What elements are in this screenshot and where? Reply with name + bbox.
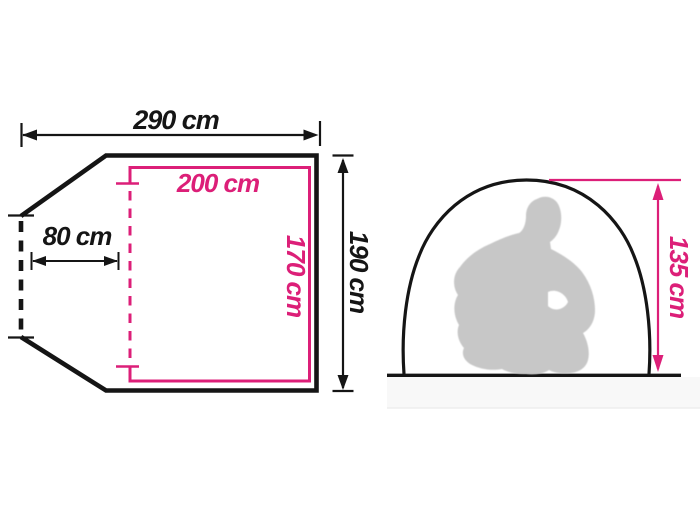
person-silhouette xyxy=(454,197,595,375)
total-width-label: 290 cm xyxy=(106,107,246,134)
arrowhead-right xyxy=(104,256,118,266)
arrowhead-left xyxy=(22,130,37,141)
peak-height-label: 135 cm xyxy=(666,207,692,347)
arrowhead-down xyxy=(338,375,349,390)
arrowhead-up xyxy=(653,183,664,200)
total-depth-label: 190 cm xyxy=(346,202,372,342)
tent-dimensions-diagram: 290 cm 80 cm 200 cm 170 cm 190 cm 135 cm xyxy=(0,0,700,525)
arrowhead-down xyxy=(653,355,664,372)
arrowhead-up xyxy=(338,158,349,173)
inner-width-label: 200 cm xyxy=(148,170,288,196)
vestibule-depth-label: 80 cm xyxy=(12,223,142,249)
arrowhead-left xyxy=(32,256,46,266)
side-view xyxy=(387,180,700,408)
dim-vestibule-arrow xyxy=(32,252,119,270)
arrowhead-right xyxy=(304,130,319,141)
ground-shadow xyxy=(387,377,700,408)
inner-depth-label: 170 cm xyxy=(283,206,309,346)
